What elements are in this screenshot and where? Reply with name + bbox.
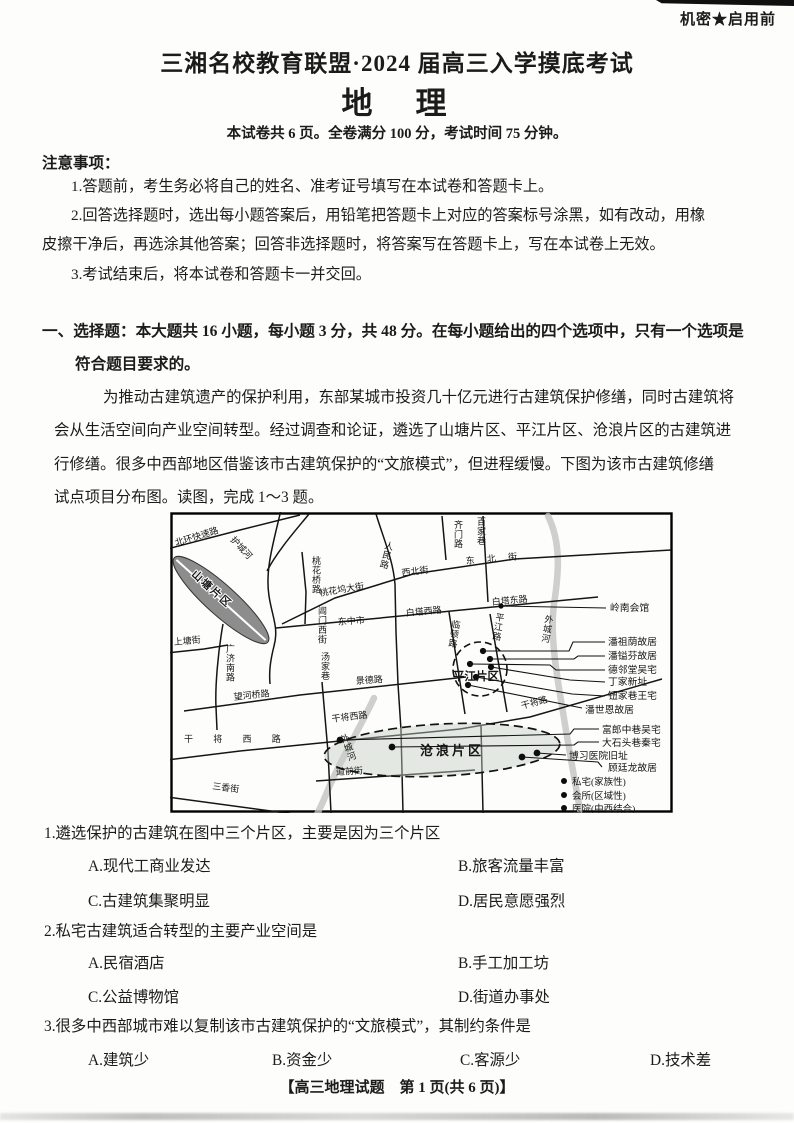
subject-title: 地 理	[0, 78, 794, 123]
label-road-qimen: 齐门路	[454, 519, 463, 549]
security-marking: 机密★启用前	[680, 8, 776, 29]
label-road-sanxiang: 三香街	[212, 780, 240, 794]
label-road-tangjiaxiang: 汤家巷	[321, 652, 330, 681]
question-3-option-c: C.客源少	[460, 1048, 520, 1070]
road-qimen	[442, 516, 446, 560]
label-road-daoqian: 道前街	[336, 765, 364, 777]
label-district-pingjiang: 平江片区	[453, 669, 499, 683]
notice-line-3: 皮擦干净后，再选涂其他答案；回答非选择题时，将答案写在答题卡上，写在本试卷上无效…	[42, 235, 758, 255]
legend-label-club: 会所(区域性)	[572, 790, 626, 802]
label-site-panzuyin: 潘祖荫故居	[608, 635, 657, 648]
question-1-option-c: C.古建筑集聚明显	[88, 889, 210, 911]
label-road-dongzhongshi: 东中市	[337, 614, 365, 627]
map-legend: 私宅(家族性) 会所(区域性) 医院(中西结合)	[561, 776, 635, 813]
label-road-beihuan: 北环快速路	[173, 524, 219, 548]
question-3-stem: 3.很多中西部城市难以复制该市古建筑保护的“文旅模式”，其制约条件是	[44, 1014, 531, 1036]
label-site-boxi: 博习医院旧址	[569, 749, 628, 762]
question-1-stem: 1.遴选保护的古建筑在图中三个片区，主要是因为三个片区	[44, 821, 440, 843]
question-1-option-d: D.居民意愿强烈	[458, 889, 565, 911]
question-3-option-b: B.资金少	[272, 1048, 332, 1070]
question-2-option-b: B.手工加工坊	[458, 951, 549, 973]
section-heading-line-1: 一、选择题：本大题共 16 小题，每小题 3 分，共 48 分。在每小题给出的四…	[42, 319, 758, 341]
scan-artifact-corner	[656, 0, 794, 6]
passage-line-2: 会从生活空间向产业空间转型。经过调查和论证，遴选了山塘片区、平江片区、沧浪片区的…	[54, 418, 760, 440]
label-site-dingjiaxinzhi: 丁家新址	[608, 675, 647, 688]
legend-dot-club	[561, 792, 567, 798]
label-road-shangtang: 上塘街	[173, 634, 201, 647]
label-site-dashitou: 大石头巷秦宅	[602, 736, 661, 749]
passage-line-4: 试点项目分布图。读图，完成 1～3 题。	[54, 485, 760, 507]
label-road-taohuaqiao: 桃花桥路	[312, 555, 321, 595]
label-road-pingjianglu: 平江路	[492, 612, 505, 642]
leader-dingjiaxinzhi	[491, 667, 605, 682]
road-changmen-curve	[268, 512, 281, 684]
label-road-xibei: 西北街	[401, 564, 429, 578]
question-2-option-c: C.公益博物馆	[88, 985, 179, 1007]
label-site-fulangzhong: 富郎中巷吴宅	[602, 723, 661, 736]
label-road-baijiaxiang: 百家巷	[477, 517, 486, 546]
question-1-option-a: A.现代工商业发达	[88, 854, 211, 876]
label-road-ganjiangxi-spread: 干 将 西 路	[184, 733, 290, 744]
passage-line-1: 为推动古建筑遗产的保护利用，东部某城市投资几十亿元进行古建筑保护修缮，同时古建筑…	[54, 385, 794, 407]
scan-artifact-bottom	[0, 1113, 794, 1120]
passage-line-3: 行修缮。很多中西部地区借鉴该市古建筑保护的“文旅模式”，但进程缓慢。下图为该市古…	[54, 452, 760, 474]
label-site-panshien: 潘世恩故居	[585, 703, 634, 716]
exam-page: 机密★启用前 三湘名校教育联盟·2024 届高三入学摸底考试 地 理 本试卷共 …	[0, 0, 794, 1123]
label-river-hucheng: 护城河	[229, 534, 255, 561]
exam-title: 三湘名校教育联盟·2024 届高三入学摸底考试	[0, 44, 794, 78]
legend-dot-hospital	[561, 805, 567, 811]
question-3-option-d: D.技术差	[650, 1048, 711, 1070]
notice-line-2: 2.回答选择题时，选出每小题答案后，用铅笔把答题卡上对应的答案标号涂黑，如有改动…	[42, 206, 787, 226]
question-2-option-a: A.民宿酒店	[88, 951, 165, 973]
map-svg: 北环快速路 护城河 上塘街 桃花坞大街 西北街 东 北 街 东中市 白塔西路 白…	[170, 512, 673, 813]
page-footer: 【高三地理试题 第 1 页(共 6 页)】	[0, 1076, 794, 1097]
river-waichenghe-right	[548, 516, 580, 810]
legend-label-hospital: 医院(中西结合)	[572, 803, 635, 813]
label-site-gutinglong: 顾廷龙故居	[608, 761, 657, 774]
road-guangji	[216, 624, 223, 730]
question-2-stem: 2.私宅古建筑适合转型的主要产业空间是	[44, 919, 317, 941]
legend-dot-private	[561, 778, 567, 784]
exam-info: 本试卷共 6 页。全卷满分 100 分，考试时间 75 分钟。	[0, 122, 794, 143]
label-site-delintang: 德邻堂吴宅	[608, 663, 657, 676]
label-road-lindun: 临顿路	[448, 618, 462, 649]
section-heading-line-2: 符合题目要求的。	[42, 352, 791, 374]
label-road-guangji: 广济南路	[226, 643, 235, 683]
notice-line-1: 1.答题前，考生务必将自己的姓名、准考证号填写在本试卷和答题卡上。	[42, 177, 787, 197]
label-road-changmenxijie: 阊门西街	[318, 605, 327, 645]
map-figure: 北环快速路 护城河 上塘街 桃花坞大街 西北街 东 北 街 东中市 白塔西路 白…	[170, 512, 673, 813]
question-2-option-d: D.街道办事处	[458, 985, 550, 1007]
notice-heading: 注意事项：	[42, 151, 120, 173]
question-3-option-a: A.建筑少	[88, 1048, 149, 1070]
question-1-option-b: B.旅客流量丰富	[458, 854, 564, 876]
label-road-baitaxi: 白塔西路	[405, 604, 442, 618]
label-road-dongbei: 东 北 街	[465, 550, 522, 566]
label-district-canglang: 沧浪片区	[420, 743, 484, 758]
label-site-panyifen: 潘镒芬故居	[608, 649, 657, 662]
label-site-lingnan: 岭南会馆	[610, 601, 649, 614]
label-site-niujiaxiang: 钮家巷王宅	[608, 689, 657, 702]
legend-label-private: 私宅(家族性)	[572, 776, 626, 788]
label-road-jingde: 景德路	[355, 673, 383, 686]
leader-panyifen	[490, 656, 605, 659]
notice-line-4: 3.考试结束后，将本试卷和答题卡一并交回。	[42, 265, 787, 285]
